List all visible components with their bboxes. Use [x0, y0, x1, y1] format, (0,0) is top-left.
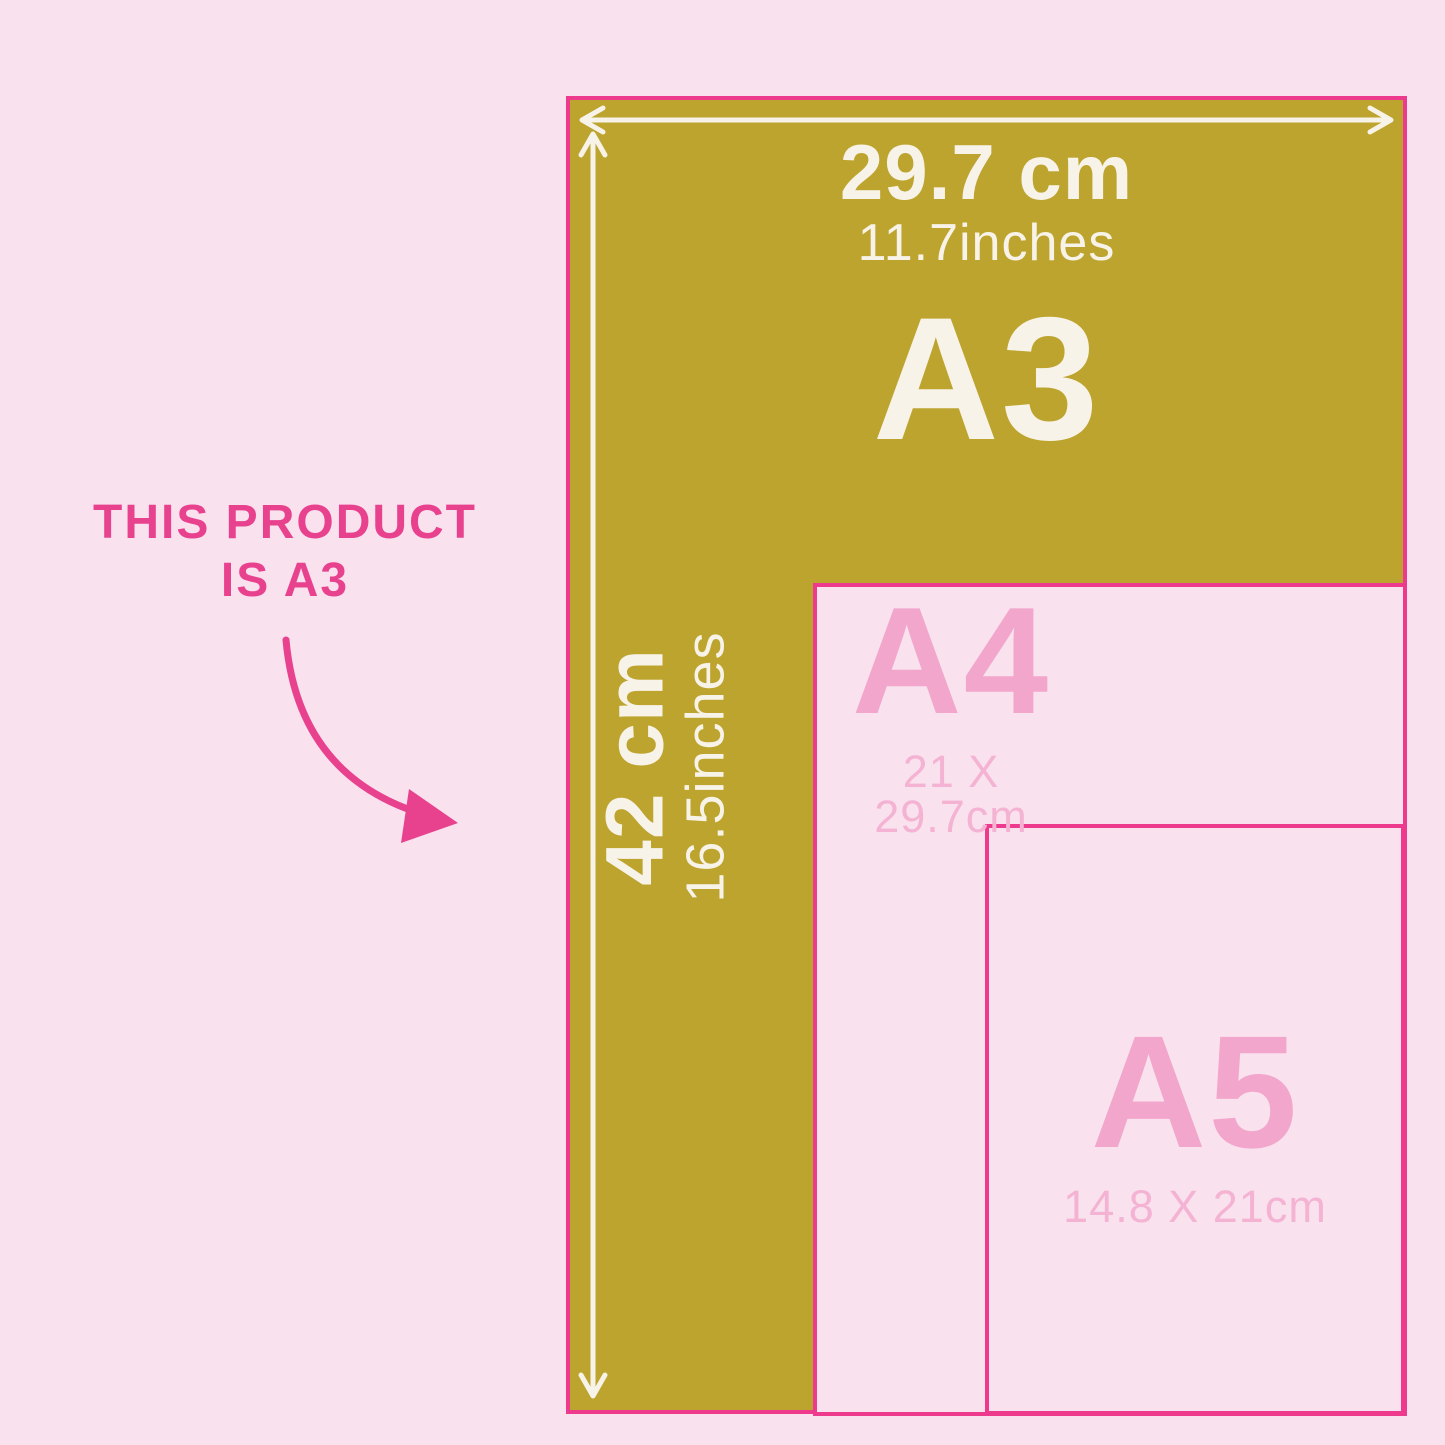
a3-height-dimension: 42 cm 16.5inches — [595, 631, 732, 902]
curved-pointer-arrow-icon — [286, 640, 458, 843]
a4-label: A4 — [838, 585, 1064, 737]
a5-dimensions: 14.8 X 21cm — [985, 1184, 1405, 1229]
product-note-line2: IS A3 — [60, 552, 510, 610]
a3-height-cm: 42 cm — [595, 648, 675, 886]
product-note-line1: THIS PRODUCT — [60, 494, 510, 552]
a5-content: A5 14.8 X 21cm — [985, 1012, 1405, 1229]
a3-label: A3 — [566, 292, 1407, 467]
a3-width-inches: 11.7inches — [566, 217, 1407, 269]
a4-content: A4 21 X 29.7cm — [838, 585, 1064, 839]
product-note: THIS PRODUCT IS A3 — [60, 494, 510, 609]
a3-width-dimension: 29.7 cm 11.7inches — [566, 133, 1407, 269]
a3-width-cm: 29.7 cm — [566, 133, 1407, 211]
a3-height-inches: 16.5inches — [680, 631, 733, 902]
a4-dimensions: 21 X 29.7cm — [838, 749, 1064, 839]
paper-size-guide: 29.7 cm 11.7inches A3 42 cm 16.5inches A… — [0, 0, 1445, 1445]
a5-label: A5 — [985, 1012, 1405, 1172]
